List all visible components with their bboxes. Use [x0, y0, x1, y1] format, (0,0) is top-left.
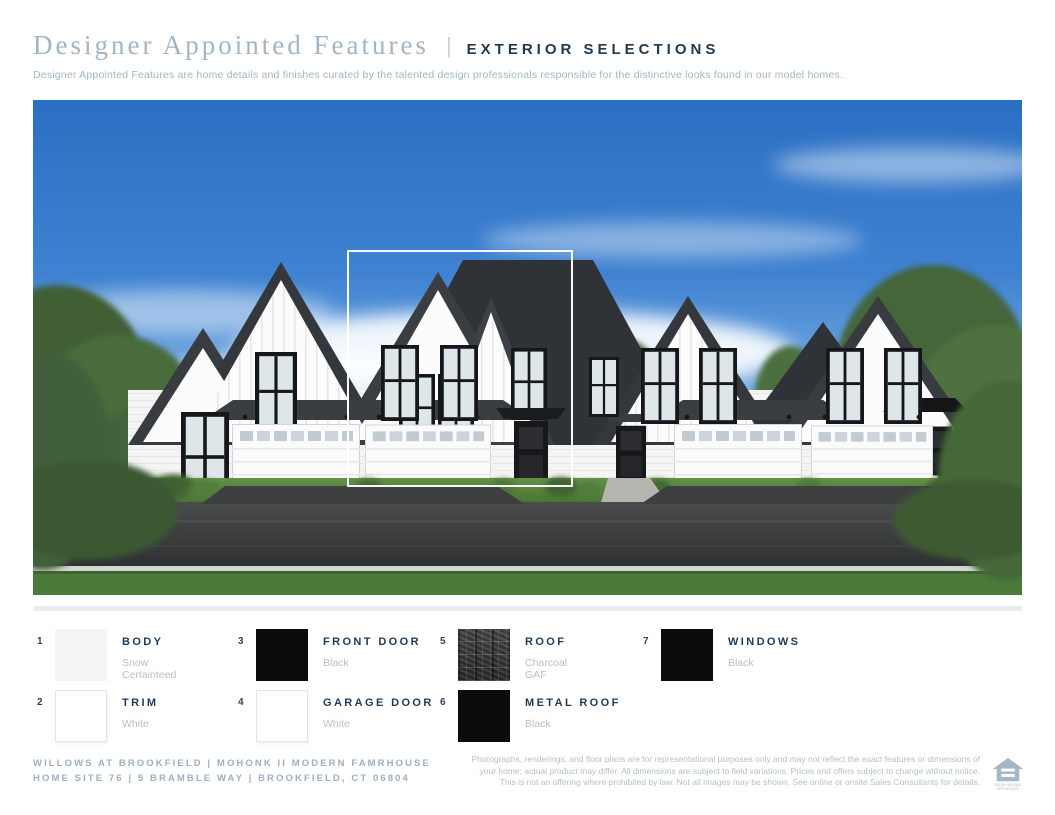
page-description: Designer Appointed Features are home det… [33, 69, 1022, 81]
trim-color-swatch [55, 690, 107, 742]
selection-body: 1 BODY SnowCertainteed [37, 629, 176, 681]
legal-disclaimer: Photographs, renderings, and floor plans… [472, 754, 980, 789]
selection-number: 3 [238, 629, 256, 647]
title-row: Designer Appointed Features | EXTERIOR S… [33, 30, 1022, 61]
selection-number: 4 [238, 690, 256, 708]
community-info: WILLOWS AT BROOKFIELD | MOHONK II MODERN… [33, 756, 431, 786]
selection-trim: 2 TRIM White [37, 690, 176, 742]
selection-label: TRIM [122, 697, 158, 709]
selection-label: ROOF [525, 636, 567, 648]
garage-door-color-swatch [256, 690, 308, 742]
selections-column-1: 1 BODY SnowCertainteed 2 TRIM White [37, 629, 176, 751]
selection-number: 7 [643, 629, 661, 647]
selection-front-door: 3 FRONT DOOR Black [238, 629, 434, 681]
footer: WILLOWS AT BROOKFIELD | MOHONK II MODERN… [33, 754, 1022, 804]
roof-shingle-swatch [458, 629, 510, 681]
selected-home-highlight-box [347, 250, 573, 487]
selection-garage-door: 4 GARAGE DOOR White [238, 690, 434, 742]
selection-number: 5 [440, 629, 458, 647]
selection-metal-roof: 6 METAL ROOF Black [440, 690, 621, 742]
equal-housing-opportunity-icon: EQUAL HOUSING OPPORTUNITY [990, 755, 1026, 793]
selection-values: White [122, 718, 158, 730]
title-separator: | [446, 33, 452, 59]
selection-windows: 7 WINDOWS Black [643, 629, 800, 681]
selection-label: WINDOWS [728, 636, 800, 648]
selections-column-3: 5 ROOF CharcoalGAF 6 METAL ROOF Black [440, 629, 621, 751]
body-color-swatch [55, 629, 107, 681]
section-divider [33, 606, 1022, 611]
selection-values: CharcoalGAF [525, 657, 567, 681]
selection-values: White [323, 718, 434, 730]
selection-roof: 5 ROOF CharcoalGAF [440, 629, 621, 681]
metal-roof-color-swatch [458, 690, 510, 742]
section-tag: EXTERIOR SELECTIONS [467, 41, 720, 58]
selection-number: 1 [37, 629, 55, 647]
community-line-2: HOME SITE 76 | 5 BRAMBLE WAY | BROOKFIEL… [33, 771, 431, 786]
front-door-color-swatch [256, 629, 308, 681]
selections-column-2: 3 FRONT DOOR Black 4 GARAGE DOOR White [238, 629, 434, 751]
selection-label: BODY [122, 636, 176, 648]
svg-text:OPPORTUNITY: OPPORTUNITY [996, 787, 1020, 791]
selections-column-4: 7 WINDOWS Black [643, 629, 800, 690]
selections-legend: 1 BODY SnowCertainteed 2 TRIM White [33, 629, 1022, 749]
community-line-1: WILLOWS AT BROOKFIELD | MOHONK II MODERN… [33, 756, 431, 771]
selection-values: Black [728, 657, 800, 669]
street [33, 486, 1022, 595]
windows-color-swatch [661, 629, 713, 681]
exterior-rendering [33, 100, 1022, 595]
selection-number: 2 [37, 690, 55, 708]
selection-label: FRONT DOOR [323, 636, 421, 648]
page-title: Designer Appointed Features [33, 30, 429, 61]
selection-values: Black [525, 718, 621, 730]
selection-number: 6 [440, 690, 458, 708]
selection-values: SnowCertainteed [122, 657, 176, 681]
exterior-selections-sheet: Designer Appointed Features | EXTERIOR S… [0, 0, 1055, 815]
selection-label: METAL ROOF [525, 697, 621, 709]
selection-label: GARAGE DOOR [323, 697, 434, 709]
selection-values: Black [323, 657, 421, 669]
header: Designer Appointed Features | EXTERIOR S… [33, 30, 1022, 81]
